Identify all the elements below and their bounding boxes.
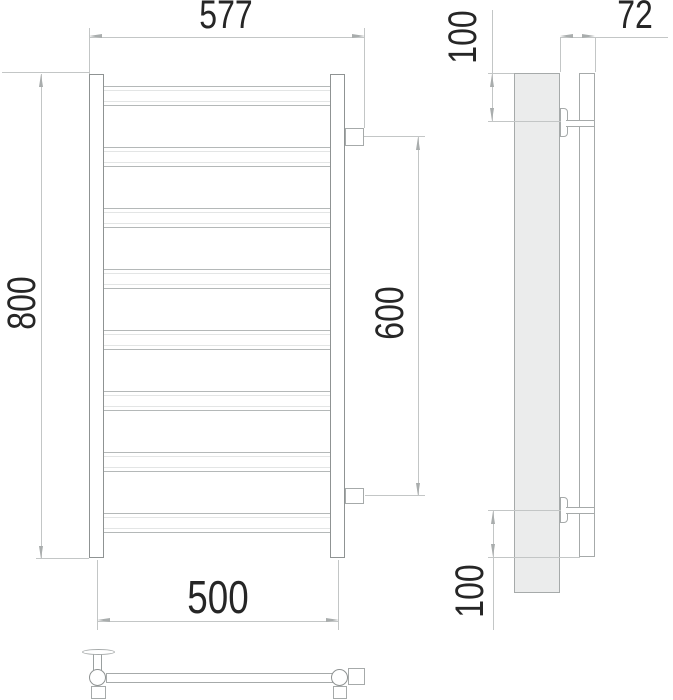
dim-label-overall-height: 800 xyxy=(2,269,42,336)
arrowhead xyxy=(89,34,102,38)
dim-label-connection-spacing: 600 xyxy=(370,279,410,346)
dim-label-bottom-offset: 100 xyxy=(450,557,490,624)
extension-line xyxy=(2,72,89,73)
dimensions: 577 800 500 600 72 100 xyxy=(0,0,673,700)
dimension-line xyxy=(492,10,493,121)
towel-rail-technical-drawing: 577 800 500 600 72 100 xyxy=(0,0,673,700)
arrowhead xyxy=(490,108,494,121)
arrowhead xyxy=(416,137,420,150)
arrowhead xyxy=(582,34,595,38)
arrowhead xyxy=(416,483,420,496)
extension-line xyxy=(36,558,89,559)
extension-line xyxy=(488,557,580,558)
dimension-line xyxy=(89,37,365,38)
dim-label-top-offset: 100 xyxy=(443,3,483,70)
dimension-line xyxy=(418,137,419,496)
dim-label-overall-width: 577 xyxy=(194,0,258,34)
arrowhead xyxy=(560,34,573,38)
arrowhead xyxy=(491,544,495,557)
arrowhead xyxy=(490,74,494,87)
extension-line xyxy=(560,38,561,72)
arrowhead xyxy=(39,546,43,559)
extension-line xyxy=(595,38,596,72)
arrowhead xyxy=(39,74,43,87)
dimension-line xyxy=(560,37,668,38)
extension-line xyxy=(488,121,561,122)
arrowhead xyxy=(326,618,339,622)
arrowhead xyxy=(491,511,495,524)
extension-line xyxy=(488,510,561,511)
arrowhead xyxy=(352,34,365,38)
dim-label-wall-depth: 72 xyxy=(607,0,663,34)
dimension-line xyxy=(493,511,494,630)
extension-line xyxy=(364,28,365,128)
dim-label-axis-width: 500 xyxy=(178,576,258,618)
arrowhead xyxy=(97,618,110,622)
